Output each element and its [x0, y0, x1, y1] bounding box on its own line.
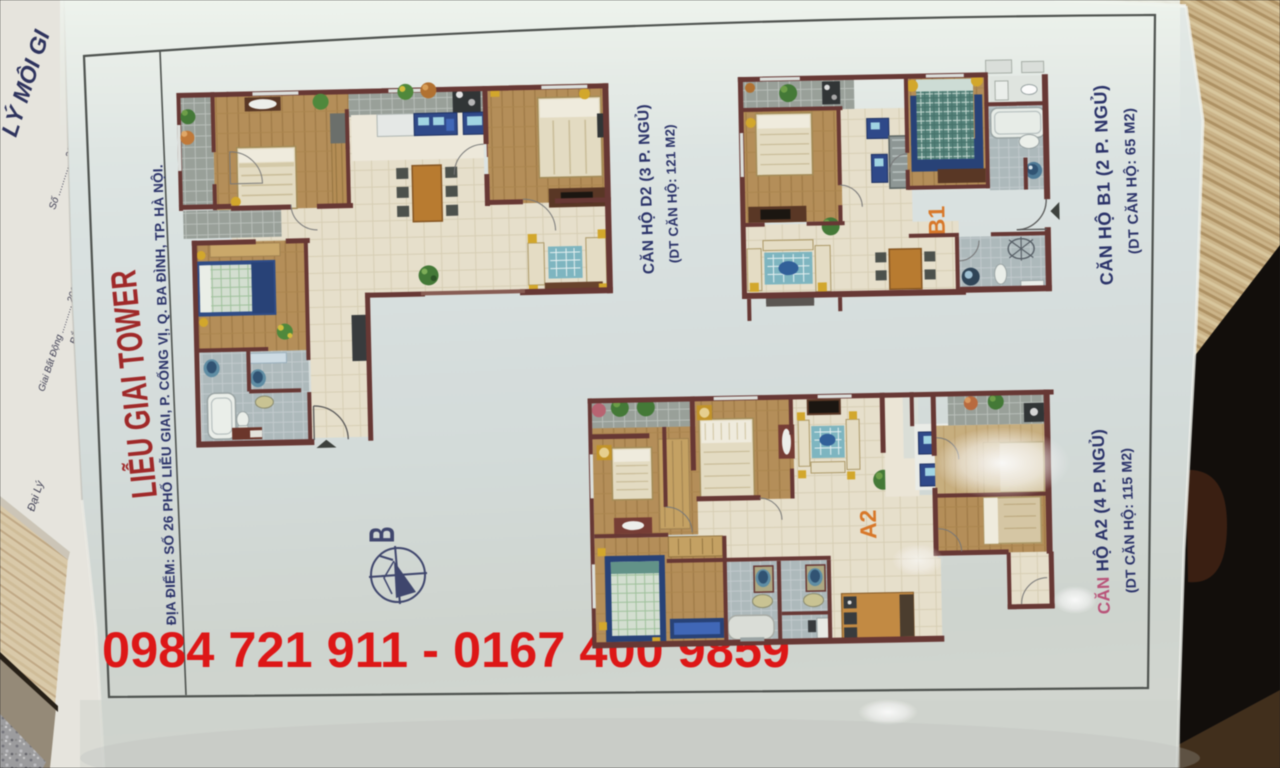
svg-text:B1: B1 — [923, 205, 950, 235]
svg-text:B: B — [363, 526, 402, 543]
svg-text:A2: A2 — [855, 509, 882, 539]
